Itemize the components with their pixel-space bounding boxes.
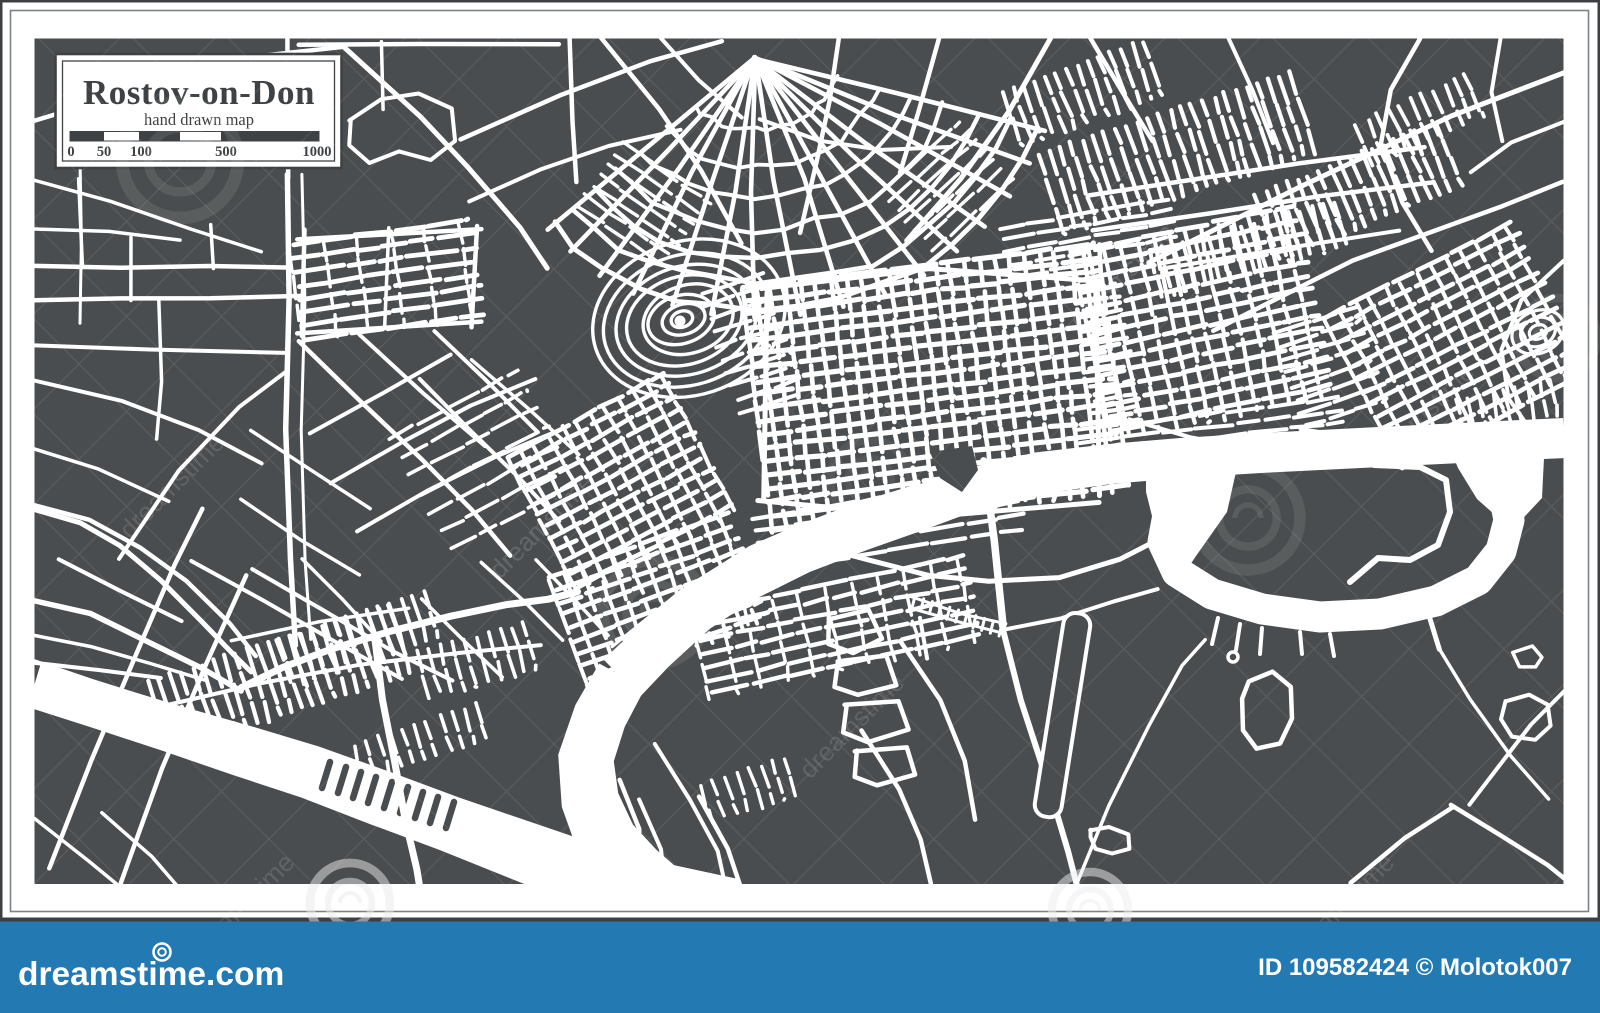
svg-text:hand drawn map: hand drawn map — [144, 110, 254, 129]
svg-text:dreamstime.com: dreamstime.com — [18, 956, 284, 993]
svg-text:50: 50 — [97, 144, 112, 160]
svg-text:0: 0 — [67, 144, 74, 160]
svg-text:1000: 1000 — [303, 144, 332, 160]
svg-text:ID 109582424 © Molotok007: ID 109582424 © Molotok007 — [1258, 954, 1572, 981]
